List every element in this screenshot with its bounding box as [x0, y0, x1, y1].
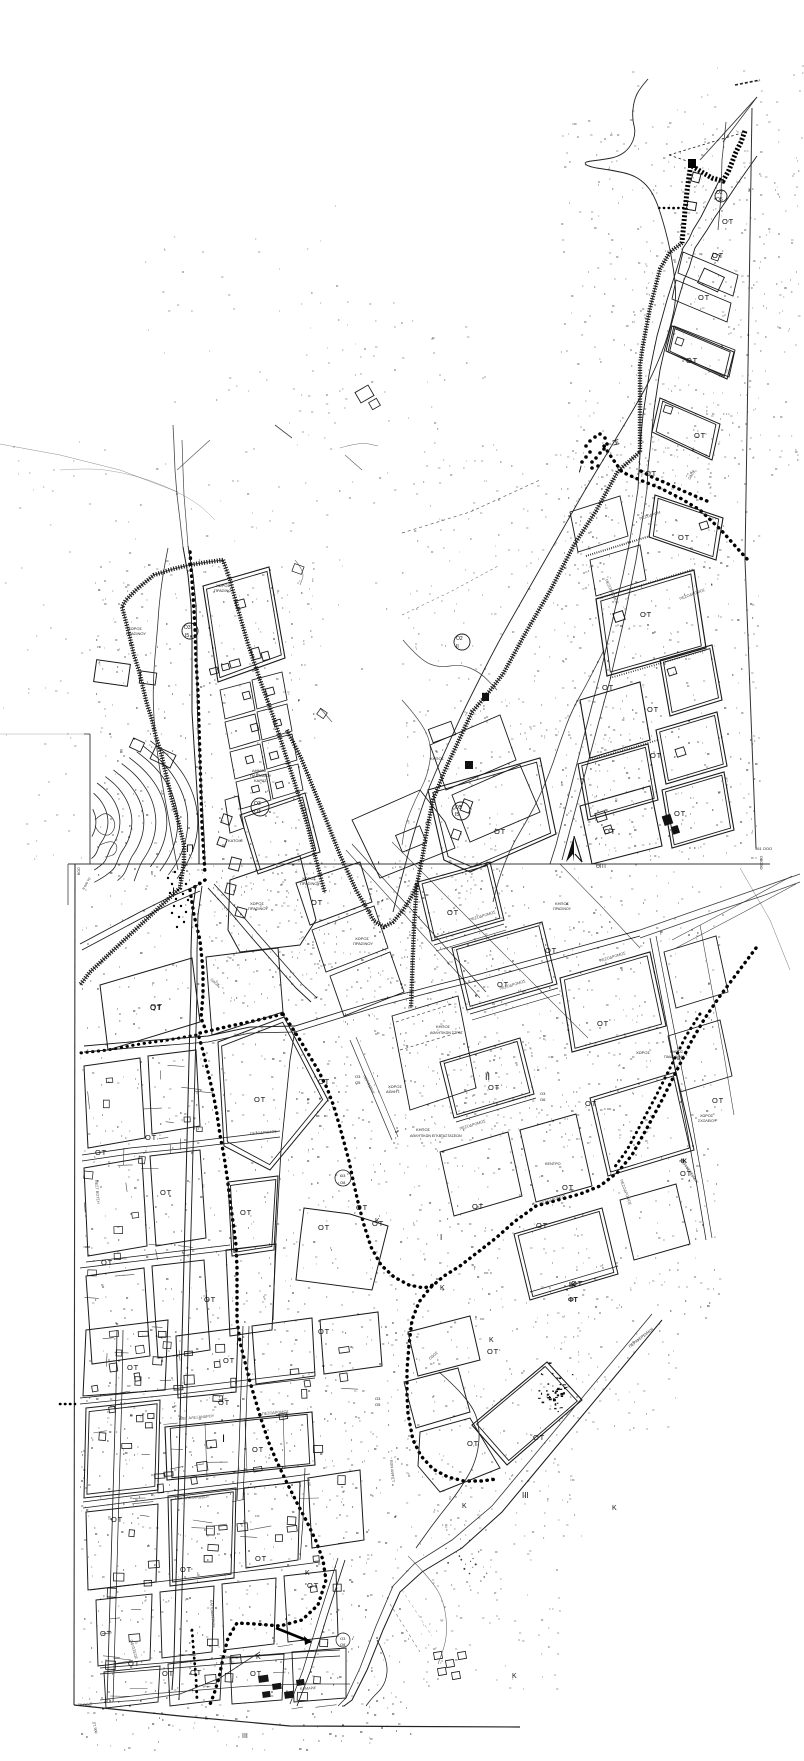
svg-text:Ο3: Ο3	[375, 1396, 381, 1401]
svg-text:ΟΤ: ΟΤ	[585, 1099, 597, 1108]
svg-text:ΟΤ: ΟΤ	[680, 1169, 692, 1178]
svg-text:ΟΤ: ΟΤ	[318, 1327, 330, 1336]
svg-text:ΟΤ: ΟΤ	[150, 1003, 162, 1012]
svg-text:ΟΤ: ΟΤ	[252, 1445, 264, 1454]
svg-text:ΠΡΑΣΙΝΟΥ: ΠΡΑΣΙΝΟΥ	[553, 907, 572, 911]
svg-text:Ο2: Ο2	[456, 636, 463, 642]
svg-text:ΜΕΓ ΑΛΕΞΑΝΔΡΟΥ: ΜΕΓ ΑΛΕΞΑΝΔΡΟΥ	[180, 1414, 215, 1421]
svg-text:Ο3: Ο3	[184, 625, 191, 631]
svg-text:ΟΤ: ΟΤ	[645, 469, 657, 478]
svg-text:ΙΚ: ΙΚ	[569, 1282, 576, 1289]
svg-text:Ο3: Ο3	[254, 809, 261, 815]
svg-text:ΟΤ: ΟΤ	[100, 1629, 112, 1638]
svg-text:ΟΤ: ΟΤ	[95, 1148, 107, 1157]
svg-text:ΙΙΙ: ΙΙΙ	[242, 1733, 248, 1740]
svg-text:ΚΗΠΟΣ: ΚΗΠΟΣ	[416, 1127, 431, 1132]
svg-text:Ν 600 ΥΟ: Ν 600 ΥΟ	[81, 876, 92, 890]
svg-text:ΠΕΡΙΦΕΡΗΣ: ΠΕΡΙΦΕΡΗΣ	[362, 1075, 376, 1096]
svg-text:ΟΤ: ΟΤ	[190, 1668, 202, 1677]
svg-text:Ο5: Ο5	[716, 197, 723, 203]
svg-text:ΙΙ: ΙΙ	[456, 644, 459, 650]
svg-text:Ο5: Ο5	[355, 1080, 361, 1085]
svg-text:ΟΤ: ΟΤ	[650, 751, 662, 760]
svg-text:ΑΘΛΗΤΙΚΩΝ ΣΤΡΑΤ.: ΑΘΛΗΤΙΚΩΝ ΣΤΡΑΤ.	[430, 1031, 464, 1035]
svg-text:ΙΚ: ΙΚ	[681, 1159, 688, 1165]
svg-text:Ο8: Ο8	[340, 1642, 346, 1647]
svg-text:ΟΤ: ΟΤ	[698, 293, 710, 302]
svg-text:ΟΤ: ΟΤ	[307, 1581, 319, 1590]
svg-text:ΟΤ: ΟΤ	[694, 431, 706, 440]
svg-text:ΝΕΣΤ ΒΟΤΣΗ: ΝΕΣΤ ΒΟΤΣΗ	[94, 1180, 100, 1204]
svg-text:ΠΡΑΣΙΝΟΥ: ΠΡΑΣΙΝΟΥ	[214, 588, 234, 593]
svg-text:ΚΑΡΑΣ: ΚΑΡΑΣ	[254, 778, 267, 783]
svg-text:Ι: Ι	[222, 1433, 225, 1445]
svg-text:ΟΔΟΣ: ΟΔΟΣ	[428, 1350, 439, 1360]
svg-text:ΟΤ: ΟΤ	[674, 809, 686, 818]
svg-text:ΒΟΟ: ΒΟΟ	[77, 867, 81, 875]
svg-text:Ο3: Ο3	[340, 1636, 346, 1641]
svg-text:ΠΕΖΟΔΡΟΜΟΣ: ΠΕΖΟΔΡΟΜΟΣ	[604, 579, 619, 606]
svg-text:ΠΡΑΣΙΝΟΥ: ΠΡΑΣΙΝΟΥ	[353, 941, 373, 946]
svg-text:ΠΕΖΟΔΡΟΜΟΣ: ΠΕΖΟΔΡΟΜΟΣ	[539, 1194, 567, 1206]
svg-text:ΠΡΑΣΙΝΟΥ: ΠΡΑΣΙΝΟΥ	[126, 631, 146, 636]
svg-text:ΚΑΠΟΔΙΣΤΡΙΟΥ: ΚΑΠΟΔΙΣΤΡΙΟΥ	[209, 1600, 215, 1629]
svg-text:Κ: Κ	[305, 1570, 310, 1577]
svg-text:ΧΩΡΟΣ: ΧΩΡΟΣ	[636, 1050, 650, 1055]
svg-text:ΠΑΙΔ ΧΑΡΑΣ: ΠΑΙΔ ΧΑΡΑΣ	[664, 1055, 686, 1059]
svg-text:59 ΟΟΟ: 59 ΟΟΟ	[78, 1703, 92, 1707]
svg-text:961 ΟΟΟ: 961 ΟΟΟ	[755, 846, 772, 851]
svg-text:ΟΤ: ΟΤ	[145, 1133, 157, 1142]
svg-text:Κ: Κ	[440, 1285, 445, 1292]
svg-text:ΟΤ: ΟΤ	[536, 1221, 548, 1230]
svg-text:ΟΤ: ΟΤ	[647, 705, 659, 714]
svg-text:ΟΤ: ΟΤ	[111, 1515, 123, 1524]
svg-text:ΟΤ: ΟΤ	[712, 251, 724, 260]
svg-text:ΧΩΡΟΣ: ΧΩΡΟΣ	[700, 1114, 714, 1118]
svg-text:Κ: Κ	[375, 1218, 380, 1225]
svg-text:ΟΤ: ΟΤ	[128, 1659, 140, 1668]
svg-text:ΟΤ: ΟΤ	[250, 1669, 262, 1678]
svg-text:ΦΤ: ΦΤ	[568, 1297, 579, 1304]
svg-text:ΟΤ: ΟΤ	[678, 533, 690, 542]
svg-text:ΠΕΖΟΔΡΟΜΟΣ: ΠΕΖΟΔΡΟΜΟΣ	[599, 951, 627, 963]
svg-text:Ι: Ι	[440, 1233, 442, 1242]
svg-text:Κ: Κ	[612, 1505, 617, 1512]
svg-text:ΟΒΟΘΟ: ΟΒΟΘΟ	[759, 856, 763, 870]
svg-text:Ι: Ι	[172, 886, 175, 898]
svg-text:ΟΤ: ΟΤ	[162, 1669, 174, 1678]
svg-text:ΟΤ: ΟΤ	[686, 356, 698, 365]
svg-text:ΕΘΝ ΑΝΤΙΣΤ: ΕΘΝ ΑΝΤΙΣΤ	[389, 1460, 395, 1483]
svg-text:ΟΤ: ΟΤ	[127, 1363, 139, 1372]
svg-text:Ο2: Ο2	[716, 190, 723, 196]
svg-text:ΟΤ: ΟΤ	[180, 1565, 192, 1574]
svg-text:ΟΤ: ΟΤ	[447, 908, 459, 917]
svg-text:ΟΤ: ΟΤ	[467, 1439, 479, 1448]
svg-text:ΠΕΖΟΔΡΟΜΟΣ: ΠΕΖΟΔΡΟΜΟΣ	[459, 1119, 487, 1131]
svg-text:ΟΤ: ΟΤ	[562, 1183, 574, 1192]
svg-text:ΟΤ: ΟΤ	[604, 827, 616, 836]
svg-text:Ι5: Ι5	[185, 633, 189, 639]
svg-text:Κ: Κ	[256, 1654, 261, 1661]
svg-text:ΟΤ: ΟΤ	[356, 1203, 368, 1212]
svg-text:ΟΤ: ΟΤ	[318, 1223, 330, 1232]
svg-text:ΚΗΠΟΣ: ΚΗΠΟΣ	[436, 1024, 451, 1029]
svg-text:ΟΤ: ΟΤ	[545, 946, 557, 955]
svg-text:ΟΤ: ΟΤ	[712, 1096, 724, 1105]
svg-text:Ο3: Ο3	[254, 801, 261, 807]
svg-text:ΠΕΖΟΔΡΟΜ: ΠΕΖΟΔΡΟΜ	[639, 510, 661, 520]
svg-text:ΣΧΟΛΕΙΟΥ: ΣΧΟΛΕΙΟΥ	[698, 1119, 717, 1123]
svg-text:ΟΤ: ΟΤ	[311, 898, 323, 907]
svg-text:Ο3: Ο3	[540, 1091, 546, 1096]
svg-text:ΚΕΝΤΡΟ: ΚΕΝΤΡΟ	[545, 1162, 561, 1166]
svg-text:Ο8: Ο8	[340, 1180, 346, 1185]
svg-text:ΘΠΤ: ΘΠΤ	[596, 864, 607, 870]
svg-text:ΟΤ: ΟΤ	[597, 1019, 609, 1028]
svg-text:ΠΕΖΟΔΡΟΜΟΣ: ΠΕΖΟΔΡΟΜΟΣ	[619, 1179, 632, 1206]
svg-text:ΟΤ: ΟΤ	[223, 1356, 235, 1365]
svg-text:Ι: Ι	[577, 464, 583, 475]
svg-text:ΟΤ: ΟΤ	[318, 1077, 330, 1086]
svg-text:ΟΤ: ΟΤ	[533, 1433, 545, 1442]
svg-text:Κ: Κ	[489, 1337, 494, 1344]
svg-text:ΠΕΖΟΔΡΟΜΟΣ: ΠΕΖΟΔΡΟΜΟΣ	[250, 1130, 278, 1136]
svg-text:ΚΗΠΟΣ: ΚΗΠΟΣ	[430, 756, 445, 761]
svg-text:ΜΕΓ ΑΛΕΞΑΝΔΡΟΥ: ΜΕΓ ΑΛΕΞΑΝΔΡΟΥ	[175, 1495, 210, 1501]
svg-text:ΟΤ: ΟΤ	[494, 827, 506, 836]
svg-text:ΟΤ: ΟΤ	[487, 1347, 499, 1356]
svg-text:ΟΔΥΣΣΕΩΣ: ΟΔΥΣΣΕΩΣ	[129, 1639, 138, 1660]
svg-text:ΑΘΛΗΤΙΚΩΝ ΕΓΚΑΤΑΣΤΑΣΕΩΝ: ΑΘΛΗΤΙΚΩΝ ΕΓΚΑΤΑΣΤΑΣΕΩΝ	[410, 1134, 462, 1138]
svg-text:ΟΤ: ΟΤ	[254, 1095, 266, 1104]
svg-text:ΟΤ: ΟΤ	[218, 1398, 230, 1407]
svg-text:Ο6: Ο6	[540, 1097, 546, 1102]
svg-text:ΠΕΖΟΔΡΟΜΟΣ: ΠΕΖΟΔΡΟΜΟΣ	[679, 588, 706, 601]
svg-text:Ο3: Ο3	[355, 1074, 361, 1079]
svg-text:ΟΤ: ΟΤ	[602, 683, 614, 692]
svg-text:ΟΤ: ΟΤ	[101, 1258, 113, 1267]
svg-text:Κ: Κ	[462, 1503, 467, 1510]
svg-text:Π: Π	[186, 843, 194, 855]
svg-text:ΟΤ: ΟΤ	[204, 1295, 216, 1304]
svg-text:ΟΤ: ΟΤ	[255, 1554, 267, 1563]
svg-text:ΠΡΑΣΙΝΟΥ: ΠΡΑΣΙΝΟΥ	[248, 906, 268, 911]
svg-text:Ο5: Ο5	[375, 1402, 381, 1407]
svg-text:ΚΑΜΑΡΑ: ΚΑΜΑΡΑ	[300, 1686, 316, 1691]
svg-text:ΚΗΠΟΣ: ΚΗΠΟΣ	[670, 1050, 684, 1054]
